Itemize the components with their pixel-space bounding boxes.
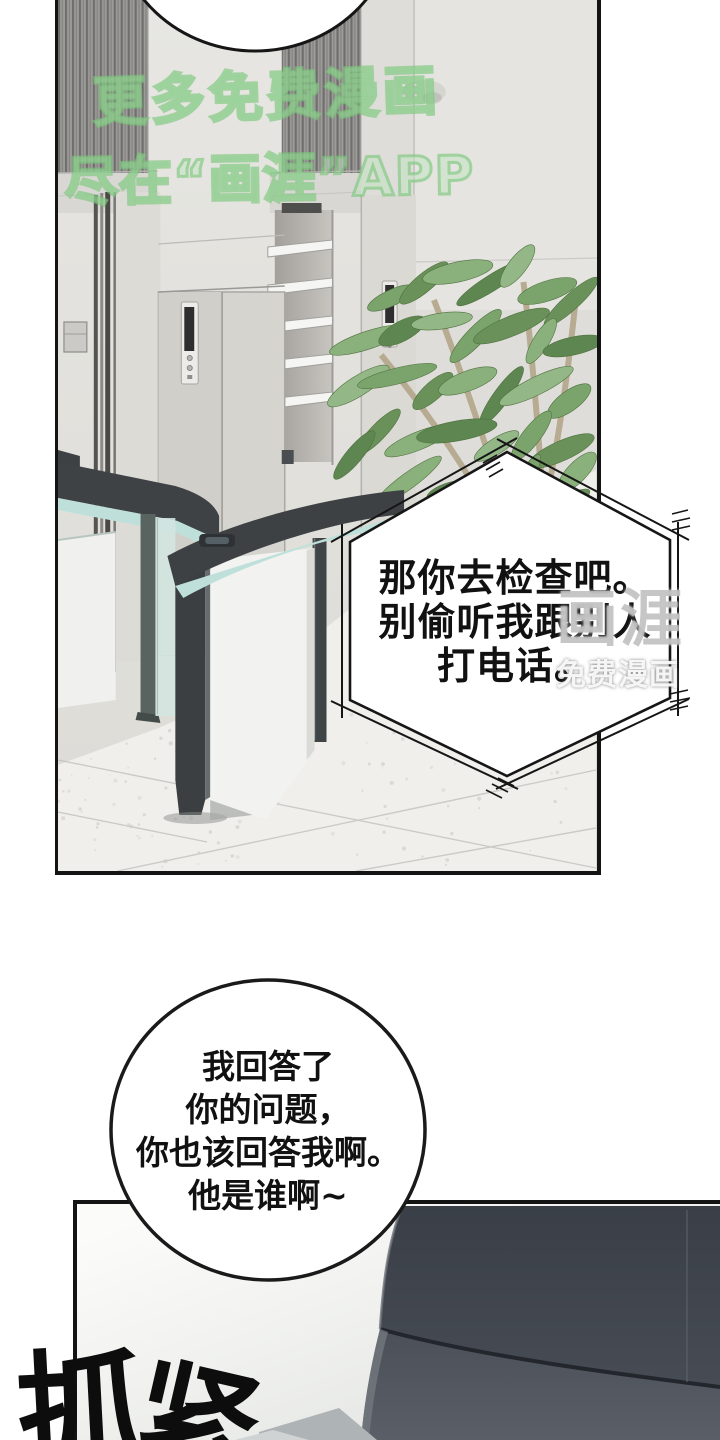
circle-line: 他是谁啊~	[112, 1175, 424, 1218]
watermark-promo-line1: 更多免费漫画	[45, 44, 487, 138]
sfx-char: 抓	[11, 1305, 149, 1440]
speech-bubble-circle-text: 我回答了 你的问题， 你也该回答我啊。 他是谁啊~	[112, 1046, 424, 1218]
sfx-text: 抓紧	[16, 1308, 266, 1440]
watermark-app-promo: 更多免费漫画 尽在“画涯”APP	[45, 44, 490, 220]
circle-line: 你也该回答我啊。	[112, 1132, 424, 1175]
office-chair	[235, 1206, 720, 1440]
elevator-call-panel	[181, 302, 198, 384]
circle-line: 你的问题，	[112, 1089, 424, 1132]
watermark-logo: 画涯 免费漫画	[556, 568, 706, 694]
comic-page: 那你去检查吧。 别偷听我跟别人 打电话。 我回答了 你的问题， 你也该回答我啊。…	[0, 0, 720, 1440]
watermark-logo-title: 画涯	[556, 568, 706, 658]
watermark-promo-line2: 尽在“画涯”APP	[49, 133, 490, 217]
wall-box	[64, 322, 87, 352]
circle-line: 我回答了	[112, 1046, 424, 1089]
